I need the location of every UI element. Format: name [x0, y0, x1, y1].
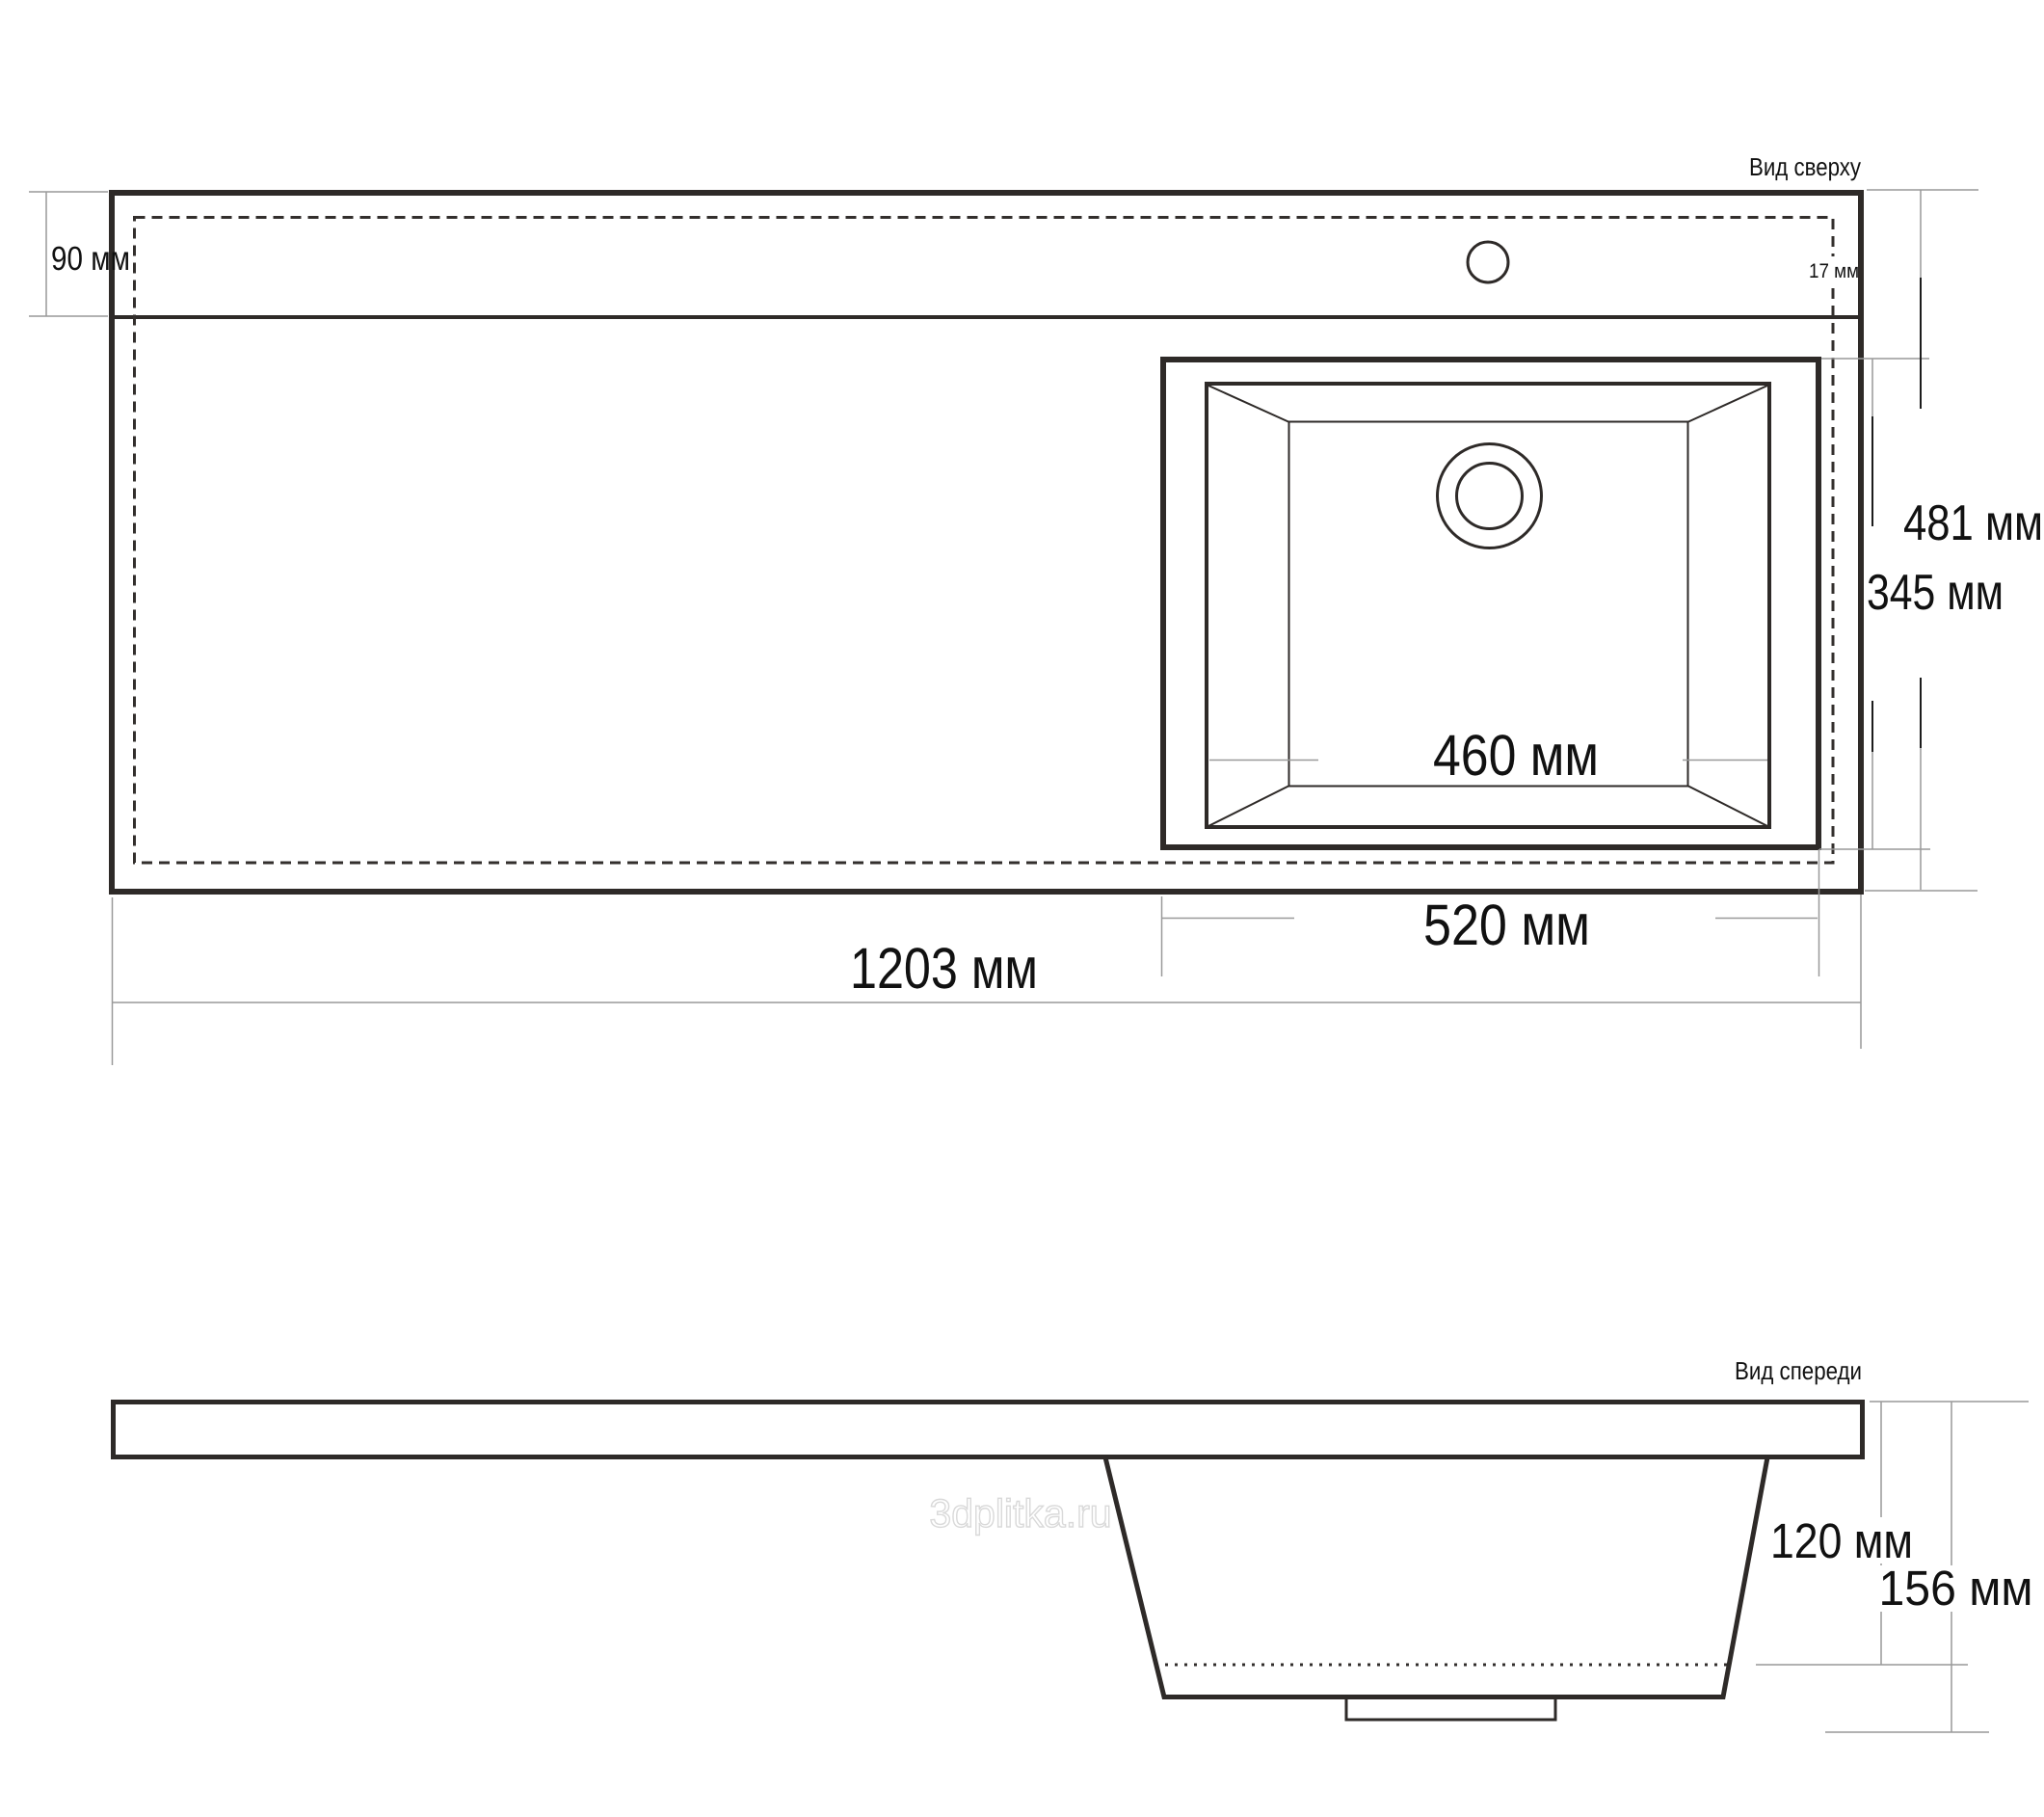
svg-text:460 мм: 460 мм	[1433, 723, 1599, 788]
svg-text:90 мм: 90 мм	[51, 240, 130, 278]
svg-text:156 мм: 156 мм	[1879, 1561, 2033, 1616]
svg-text:1203 мм: 1203 мм	[850, 936, 1038, 1001]
svg-text:3dplitka.ru: 3dplitka.ru	[929, 1491, 1111, 1536]
svg-text:Вид сверху: Вид сверху	[1749, 152, 1861, 181]
svg-text:481 мм: 481 мм	[1903, 495, 2043, 551]
svg-text:345 мм: 345 мм	[1867, 565, 2004, 621]
svg-text:520 мм: 520 мм	[1423, 893, 1590, 957]
svg-text:17 мм: 17 мм	[1809, 260, 1859, 282]
svg-text:Вид спереди: Вид спереди	[1735, 1356, 1862, 1385]
